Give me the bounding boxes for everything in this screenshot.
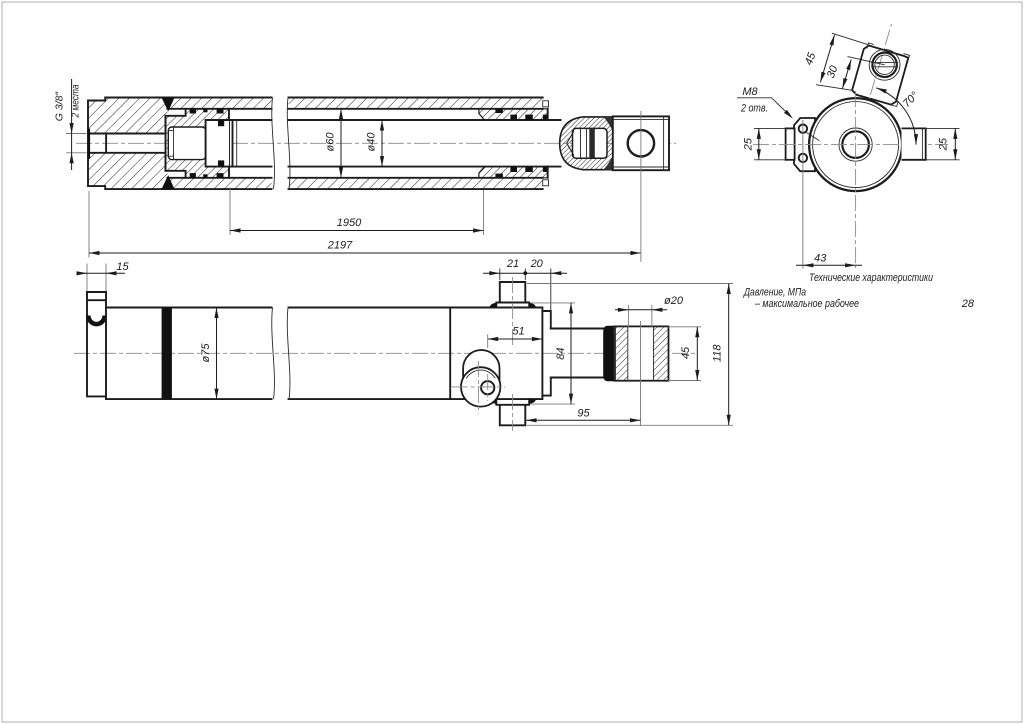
svg-text:25: 25 bbox=[743, 137, 755, 151]
svg-text:2 места: 2 места bbox=[70, 84, 82, 118]
svg-text:М8: М8 bbox=[742, 86, 758, 98]
svg-text:45: 45 bbox=[680, 346, 692, 359]
svg-text:21: 21 bbox=[506, 258, 519, 270]
svg-text:Давление, МПа: Давление, МПа bbox=[742, 287, 806, 299]
svg-text:G 3/8″: G 3/8″ bbox=[54, 91, 66, 122]
svg-text:ø20: ø20 bbox=[664, 295, 684, 307]
svg-text:25: 25 bbox=[938, 137, 950, 151]
svg-text:Технические характеристики: Технические характеристики bbox=[809, 272, 933, 284]
svg-text:– максимальное рабочее: – максимальное рабочее bbox=[754, 298, 859, 310]
svg-text:ø40: ø40 bbox=[366, 132, 378, 152]
svg-text:2 отв.: 2 отв. bbox=[740, 103, 768, 115]
svg-text:43: 43 bbox=[814, 253, 827, 265]
svg-text:1950: 1950 bbox=[337, 217, 362, 229]
svg-text:ø75: ø75 bbox=[200, 343, 212, 363]
svg-text:95: 95 bbox=[577, 408, 590, 420]
svg-text:2197: 2197 bbox=[327, 240, 353, 252]
svg-text:51: 51 bbox=[512, 326, 524, 338]
svg-text:15: 15 bbox=[116, 261, 129, 273]
svg-text:ø60: ø60 bbox=[325, 132, 337, 152]
svg-text:28: 28 bbox=[961, 298, 975, 310]
svg-text:84: 84 bbox=[555, 347, 567, 359]
svg-text:20: 20 bbox=[530, 258, 544, 270]
svg-text:118: 118 bbox=[712, 344, 724, 362]
